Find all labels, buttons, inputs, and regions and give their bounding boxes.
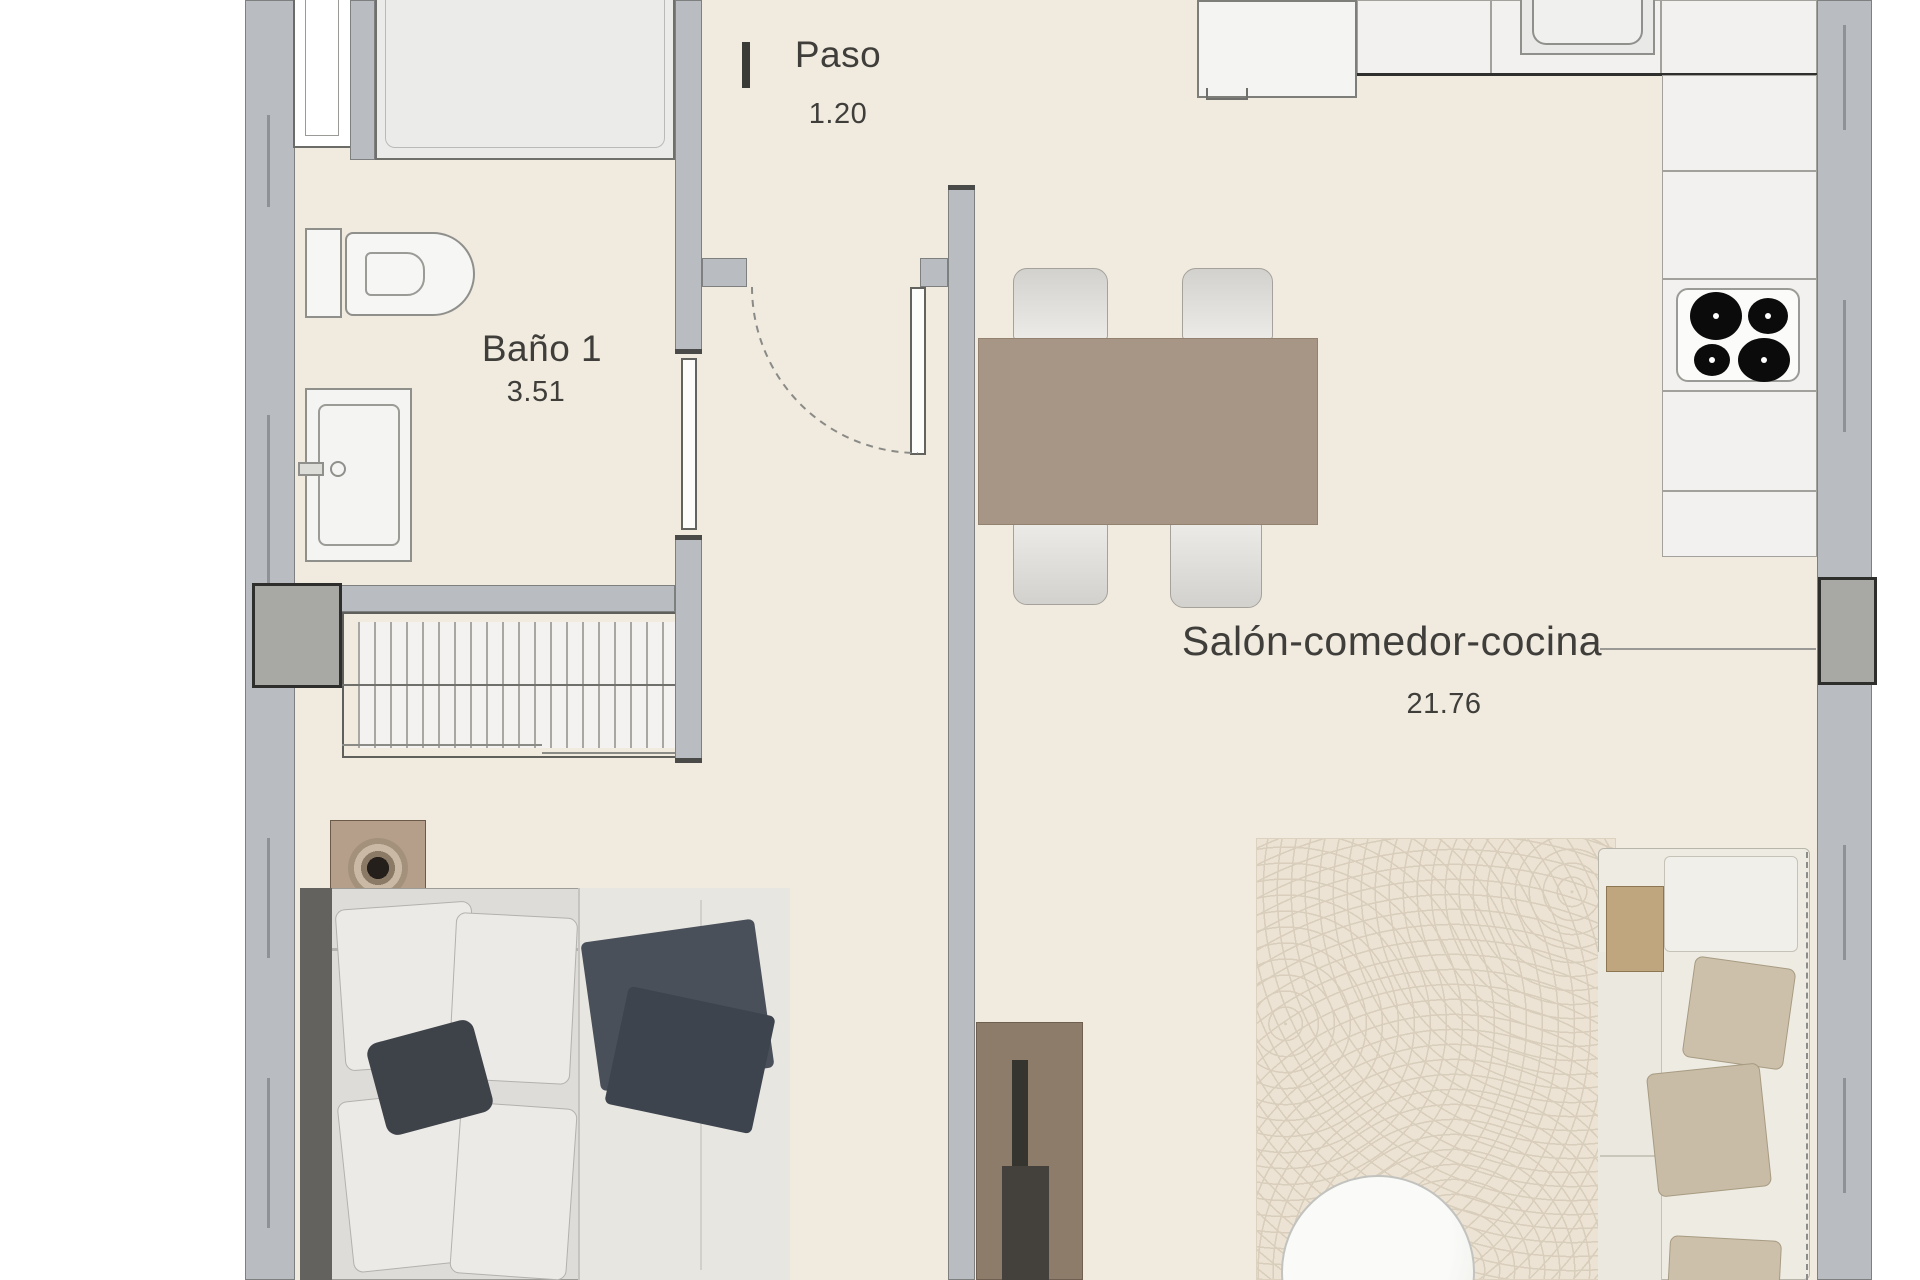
wall-cap (948, 185, 975, 190)
refrigerator-handle (1206, 88, 1248, 100)
sofa-pillow (1681, 955, 1796, 1070)
shower-tray-inner-line (385, 0, 665, 148)
wall-window-dash (267, 838, 270, 958)
bed-headboard (300, 888, 332, 1280)
room-area-salon: 21.76 (1334, 688, 1554, 721)
door-swing-arc (740, 280, 940, 465)
toilet-icon (305, 228, 342, 318)
pillar-left (252, 583, 342, 688)
label-leader-line (1600, 648, 1816, 650)
dining-chair (1013, 268, 1108, 340)
dining-chair (1182, 268, 1273, 340)
cooktop-icon (1676, 288, 1800, 382)
wall-cap (675, 758, 702, 763)
bathroom-door-leaf (681, 358, 697, 530)
wall-window-dash (1843, 1078, 1846, 1193)
dining-chair (1013, 522, 1108, 605)
sofa-chaise-cushion (1664, 856, 1798, 952)
sofa-pillow (1666, 1235, 1782, 1280)
wall-central (948, 185, 975, 1280)
burner-center-dot (1713, 313, 1719, 319)
pillar-right (1818, 577, 1877, 685)
tv-base (1002, 1166, 1049, 1280)
counter-divider (1662, 490, 1817, 492)
wall-cap (675, 349, 702, 354)
floor-plan-canvas: Paso 1.20 Baño 1 3.51 Salón-comedor-coci… (0, 0, 1920, 1280)
wall-window-dash (267, 1078, 270, 1228)
faucet-knob (330, 461, 346, 477)
dining-table (978, 338, 1318, 525)
wall-window-dash (1843, 300, 1846, 432)
washbasin-basin (318, 404, 400, 546)
burner-center-dot (1765, 313, 1771, 319)
wall-window-dash (1843, 845, 1846, 960)
wall-cap (675, 535, 702, 540)
burner-center-dot (1761, 357, 1767, 363)
wardrobe-front-line (342, 744, 542, 746)
wardrobe-rail (342, 684, 700, 686)
wall-bathroom-east (675, 0, 702, 353)
wall-stub-shower (350, 0, 375, 160)
refrigerator-icon (1197, 0, 1357, 98)
toilet-seat-inner (365, 252, 425, 296)
room-area-paso: 1.20 (738, 98, 938, 131)
wall-bathroom-east-lower (675, 535, 702, 763)
counter-divider (1490, 0, 1492, 75)
faucet-icon (298, 462, 324, 476)
wall-window-dash (267, 115, 270, 207)
counter-divider (1662, 390, 1817, 392)
sofa-side-table (1606, 886, 1664, 972)
room-label-paso: Paso (738, 34, 938, 77)
room-label-bano: Baño 1 (432, 328, 652, 371)
counter-divider (1660, 0, 1662, 75)
kitchen-sink-basin (1532, 0, 1643, 45)
window-inner-line (305, 0, 339, 136)
counter-divider (1662, 170, 1817, 172)
counter-divider (1662, 278, 1817, 280)
wall-bathroom-south (295, 585, 675, 612)
room-label-salon: Salón-comedor-cocina (1172, 618, 1612, 665)
wall-window-dash (1843, 25, 1846, 130)
sofa-pillow (1646, 1062, 1772, 1197)
dining-chair (1170, 522, 1262, 608)
sofa-wall-shadow (1806, 852, 1808, 1280)
room-area-bano: 3.51 (426, 376, 646, 409)
burner-center-dot (1709, 357, 1715, 363)
sofa-seat-divider (1600, 1155, 1662, 1157)
pillow (449, 1101, 578, 1280)
